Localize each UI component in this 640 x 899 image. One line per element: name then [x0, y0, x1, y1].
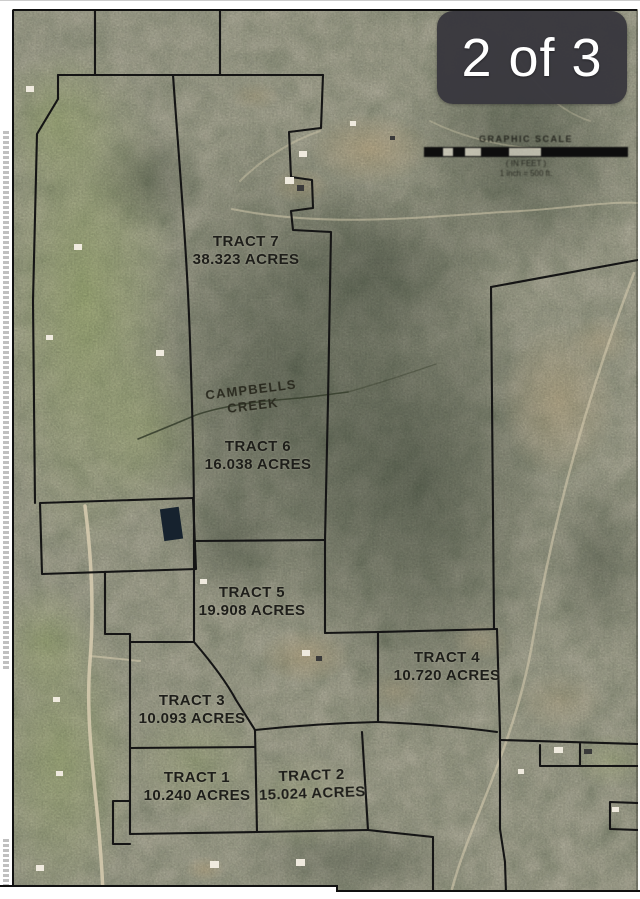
tract-acres: 10.093 ACRES — [124, 710, 260, 728]
gallery-count-text: 2 of 3 — [461, 27, 602, 89]
tract-name: TRACT 7 — [178, 233, 314, 251]
tract-name: TRACT 4 — [379, 649, 515, 667]
tract-name: TRACT 5 — [184, 584, 320, 602]
graphic-scale-title: GRAPHIC SCALE — [420, 134, 632, 144]
tract-1-label: TRACT 1 10.240 ACRES — [129, 769, 265, 805]
left-margin — [0, 1, 12, 899]
scale-ratio: 1 inch = 500 ft. — [420, 169, 632, 179]
tract-6-label: TRACT 6 16.038 ACRES — [190, 438, 326, 474]
tract-5-label: TRACT 5 19.908 ACRES — [184, 584, 320, 620]
gallery-count-badge: 2 of 3 — [437, 11, 627, 104]
tract-acres: 38.323 ACRES — [178, 251, 314, 269]
graphic-scale: GRAPHIC SCALE ( IN FEET ) 1 inch = 500 f… — [420, 134, 632, 179]
tract-4-label: TRACT 4 10.720 ACRES — [379, 649, 515, 685]
top-margin — [0, 1, 640, 9]
tract-acres: 19.908 ACRES — [184, 602, 320, 620]
tract-acres: 10.240 ACRES — [129, 787, 265, 805]
tract-name: TRACT 6 — [190, 438, 326, 456]
scale-bar — [424, 147, 628, 157]
tract-name: TRACT 3 — [124, 692, 260, 710]
margin-fine-print — [3, 131, 9, 671]
listing-photo[interactable]: TRACT 7 38.323 ACRES TRACT 6 16.038 ACRE… — [0, 0, 640, 899]
tract-acres: 10.720 ACRES — [379, 667, 515, 685]
tract-3-label: TRACT 3 10.093 ACRES — [124, 692, 260, 728]
bottom-margin-step — [336, 885, 338, 892]
tract-7-label: TRACT 7 38.323 ACRES — [178, 233, 314, 269]
bottom-margin-left — [0, 885, 337, 899]
tract-acres: 16.038 ACRES — [190, 456, 326, 474]
tract-name: TRACT 1 — [129, 769, 265, 787]
scale-units: ( IN FEET ) — [420, 159, 632, 169]
